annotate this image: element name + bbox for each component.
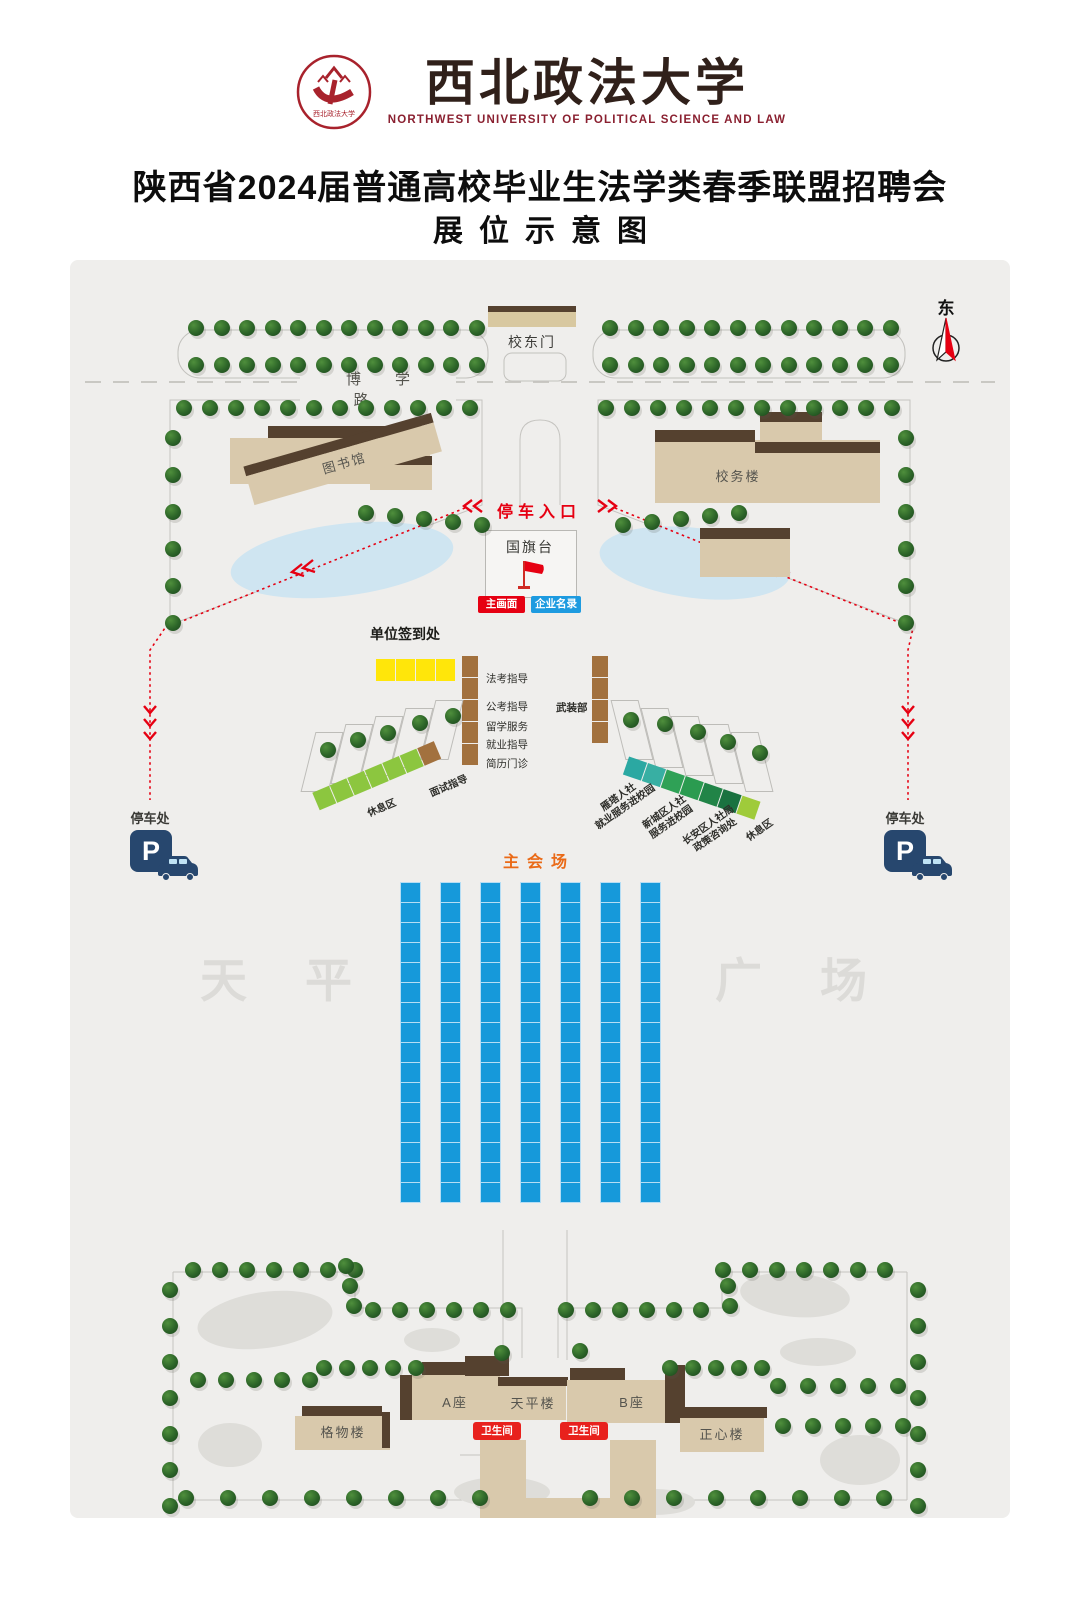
booth-cell: [401, 883, 420, 902]
tree-icon: [332, 400, 348, 416]
booth-cell: [481, 1043, 500, 1062]
gewu-side: [382, 1412, 390, 1448]
booth-cell: [641, 1083, 660, 1102]
tree-icon: [832, 357, 848, 373]
tree-icon: [800, 1378, 816, 1394]
guide-booth-cell: [592, 700, 608, 721]
fair-title: 陕西省2024届普通高校毕业生法学类春季联盟招聘会: [0, 160, 1080, 209]
tree-icon: [410, 400, 426, 416]
booth-cell: [441, 1003, 460, 1022]
booth-cell: [561, 1183, 580, 1202]
tree-icon: [857, 320, 873, 336]
tree-icon: [676, 400, 692, 416]
booth-grid-column: [400, 882, 421, 1203]
booth-cell: [601, 963, 620, 982]
booth-cell: [521, 1003, 540, 1022]
tree-icon: [708, 1490, 724, 1506]
admin-roof-left: [655, 430, 755, 442]
tree-icon: [262, 1490, 278, 1506]
tree-icon: [265, 357, 281, 373]
tree-icon: [754, 400, 770, 416]
tree-icon: [742, 1262, 758, 1278]
car-left-icon: [154, 854, 202, 882]
tree-icon: [302, 1372, 318, 1388]
booth-cell: [521, 1083, 540, 1102]
tree-icon: [266, 1262, 282, 1278]
tree-icon: [188, 357, 204, 373]
tianping-label: 天平楼: [498, 1393, 568, 1412]
booth-cell: [401, 963, 420, 982]
tree-icon: [188, 320, 204, 336]
tree-icon: [165, 578, 181, 594]
tree-icon: [446, 1302, 462, 1318]
booth-cell: [481, 1023, 500, 1042]
block-a-lower-wing: [480, 1440, 526, 1518]
tree-icon: [358, 505, 374, 521]
tree-icon: [419, 1302, 435, 1318]
tree-icon: [380, 725, 396, 741]
service-booth-label: 法考指导: [486, 671, 556, 686]
tree-icon: [165, 467, 181, 483]
booth-cell: [641, 1043, 660, 1062]
booth-cell: [641, 983, 660, 1002]
booth-cell: [401, 903, 420, 922]
tree-icon: [910, 1318, 926, 1334]
gewu-roof: [302, 1406, 382, 1416]
tree-icon: [883, 320, 899, 336]
zhengxin-label: 正心楼: [682, 1424, 762, 1443]
booth-cell: [401, 1063, 420, 1082]
tree-icon: [754, 1360, 770, 1376]
tree-icon: [720, 734, 736, 750]
tree-icon: [832, 400, 848, 416]
booth-cell: [601, 903, 620, 922]
tree-icon: [316, 1360, 332, 1376]
tree-icon: [162, 1462, 178, 1478]
tree-icon: [218, 1372, 234, 1388]
booth-cell: [521, 923, 540, 942]
booth-cell: [641, 1003, 660, 1022]
booth-cell: [601, 1043, 620, 1062]
booth-cell: [521, 1123, 540, 1142]
service-booth-label: 简历门诊: [486, 756, 556, 771]
compass-icon: [928, 316, 964, 370]
gate-building: [488, 312, 576, 327]
tree-icon: [412, 715, 428, 731]
tree-icon: [728, 400, 744, 416]
booth-cell: [561, 923, 580, 942]
tree-icon: [690, 724, 706, 740]
tree-icon: [165, 541, 181, 557]
tree-icon: [679, 357, 695, 373]
restroom-badge-left: 卫生间: [473, 1422, 521, 1440]
booth-cell: [441, 1183, 460, 1202]
guide-booth-column: [462, 656, 478, 765]
booth-cell: [401, 1163, 420, 1182]
booth-cell: [561, 1143, 580, 1162]
tree-icon: [883, 357, 899, 373]
booth-cell: [521, 943, 540, 962]
tree-icon: [693, 1302, 709, 1318]
booth-cell: [601, 1003, 620, 1022]
tree-icon: [165, 504, 181, 520]
tree-icon: [346, 1490, 362, 1506]
booth-cell: [601, 1183, 620, 1202]
booth-cell: [601, 943, 620, 962]
booth-cell: [481, 1143, 500, 1162]
booth-cell: [401, 1103, 420, 1122]
university-name: 西北政法大学: [388, 58, 787, 108]
tree-icon: [228, 400, 244, 416]
booth-cell: [521, 1023, 540, 1042]
tree-icon: [342, 1278, 358, 1294]
tree-icon: [850, 1262, 866, 1278]
tree-icon: [346, 1298, 362, 1314]
booth-cell: [401, 1023, 420, 1042]
tree-icon: [792, 1490, 808, 1506]
armed-forces-booth-column: [592, 656, 608, 743]
tree-icon: [704, 357, 720, 373]
booth-cell: [481, 923, 500, 942]
tree-icon: [162, 1498, 178, 1514]
booth-cell: [481, 1103, 500, 1122]
tree-icon: [392, 1302, 408, 1318]
tree-icon: [679, 320, 695, 336]
tree-icon: [178, 1490, 194, 1506]
booth-cell: [441, 1103, 460, 1122]
tree-icon: [214, 357, 230, 373]
tree-icon: [384, 400, 400, 416]
tree-icon: [857, 357, 873, 373]
tree-icon: [338, 1258, 354, 1274]
guide-booth-cell: [592, 656, 608, 677]
watermark-tianping: 天平: [200, 942, 410, 1011]
tree-icon: [598, 400, 614, 416]
booth-cell: [401, 943, 420, 962]
company-directory-badge: 企业名录: [531, 596, 581, 613]
tree-icon: [722, 1298, 738, 1314]
tree-icon: [582, 1490, 598, 1506]
tree-icon: [704, 320, 720, 336]
booth-cell: [441, 1023, 460, 1042]
tree-icon: [162, 1390, 178, 1406]
tree-icon: [806, 400, 822, 416]
tree-icon: [910, 1354, 926, 1370]
booth-cell: [561, 1003, 580, 1022]
booth-cell: [641, 1183, 660, 1202]
tree-icon: [500, 1302, 516, 1318]
tree-icon: [750, 1490, 766, 1506]
booth-cell: [561, 1043, 580, 1062]
booth-cell: [481, 1163, 500, 1182]
tree-icon: [715, 1262, 731, 1278]
tree-icon: [339, 1360, 355, 1376]
tree-icon: [469, 357, 485, 373]
tree-icon: [416, 511, 432, 527]
booth-cell: [641, 1063, 660, 1082]
guide-booth-cell: [462, 656, 478, 677]
tree-icon: [770, 1378, 786, 1394]
tree-icon: [341, 320, 357, 336]
tree-icon: [290, 320, 306, 336]
booth-cell: [601, 1143, 620, 1162]
booth-cell: [521, 1043, 540, 1062]
tree-icon: [445, 708, 461, 724]
tree-icon: [220, 1490, 236, 1506]
booth-cell: [481, 883, 500, 902]
checkin-desk-cell: [416, 659, 435, 681]
tree-icon: [430, 1490, 446, 1506]
booth-cell: [481, 943, 500, 962]
booth-cell: [441, 963, 460, 982]
tree-icon: [612, 1302, 628, 1318]
tree-icon: [781, 320, 797, 336]
tree-icon: [653, 357, 669, 373]
tree-icon: [781, 357, 797, 373]
booth-cell: [561, 903, 580, 922]
tree-icon: [898, 504, 914, 520]
guide-booth-cell: [462, 678, 478, 699]
booth-cell: [561, 963, 580, 982]
booth-cell: [441, 1123, 460, 1142]
gate-walk-rect: [504, 353, 566, 381]
tree-icon: [418, 357, 434, 373]
block-b-label: B座: [602, 1392, 662, 1411]
tree-icon: [445, 514, 461, 530]
booth-cell: [561, 1063, 580, 1082]
booth-cell: [521, 1103, 540, 1122]
booth-cell: [481, 1083, 500, 1102]
tree-icon: [190, 1372, 206, 1388]
booth-cell: [521, 1163, 540, 1182]
tree-icon: [898, 430, 914, 446]
car-right-icon: [908, 854, 956, 882]
tree-icon: [367, 320, 383, 336]
tree-icon: [628, 320, 644, 336]
restroom-badge-right: 卫生间: [560, 1422, 608, 1440]
booth-cell: [521, 983, 540, 1002]
tree-icon: [165, 615, 181, 631]
booth-cell: [481, 1063, 500, 1082]
tree-icon: [865, 1418, 881, 1434]
booth-cell: [641, 1143, 660, 1162]
booth-grid-column: [520, 882, 541, 1203]
tree-icon: [830, 1378, 846, 1394]
booth-cell: [401, 923, 420, 942]
venue-map: 东 校东门 博学路 图书馆 图书馆 校务楼 停车入口 国旗台 主画面 企业名录 …: [70, 260, 1010, 1518]
tree-icon: [418, 320, 434, 336]
tree-icon: [876, 1490, 892, 1506]
tree-icon: [890, 1378, 906, 1394]
tree-icon: [639, 1302, 655, 1318]
gate-arch-walkway: [520, 420, 560, 505]
tree-icon: [623, 712, 639, 728]
service-booth-label: 公考指导: [486, 699, 556, 714]
tree-icon: [392, 320, 408, 336]
tree-icon: [910, 1462, 926, 1478]
tree-icon: [472, 1490, 488, 1506]
tree-icon: [469, 320, 485, 336]
booth-cell: [401, 1003, 420, 1022]
tree-icon: [408, 1360, 424, 1376]
booth-cell: [441, 1143, 460, 1162]
booth-cell: [401, 1143, 420, 1162]
tree-icon: [392, 357, 408, 373]
tree-icon: [320, 742, 336, 758]
tree-icon: [162, 1426, 178, 1442]
booth-grid-column: [560, 882, 581, 1203]
booth-cell: [481, 903, 500, 922]
tree-icon: [673, 511, 689, 527]
tree-icon: [162, 1354, 178, 1370]
tree-icon: [666, 1490, 682, 1506]
booth-cell: [481, 1123, 500, 1142]
tree-icon: [280, 400, 296, 416]
booth-cell: [641, 1123, 660, 1142]
tree-icon: [474, 517, 490, 533]
booth-cell: [441, 1043, 460, 1062]
booth-cell: [601, 1123, 620, 1142]
booth-cell: [441, 983, 460, 1002]
booth-cell: [521, 883, 540, 902]
tree-icon: [176, 400, 192, 416]
guide-booth-cell: [592, 722, 608, 743]
svg-text:西北政法大学: 西北政法大学: [313, 109, 355, 118]
booth-cell: [481, 983, 500, 1002]
tree-icon: [624, 1490, 640, 1506]
tree-icon: [910, 1282, 926, 1298]
flag-icon: [515, 557, 545, 591]
tree-icon: [362, 1360, 378, 1376]
tree-icon: [265, 320, 281, 336]
booth-cell: [401, 1183, 420, 1202]
booth-cell: [561, 883, 580, 902]
tree-icon: [702, 400, 718, 416]
tree-icon: [316, 320, 332, 336]
booth-cell: [441, 883, 460, 902]
tree-icon: [274, 1372, 290, 1388]
booth-cell: [641, 963, 660, 982]
tree-icon: [358, 400, 374, 416]
main-venue-label: 主会场: [465, 848, 613, 872]
tree-icon: [755, 357, 771, 373]
tree-icon: [239, 1262, 255, 1278]
tree-icon: [293, 1262, 309, 1278]
booth-cell: [561, 983, 580, 1002]
tree-icon: [898, 467, 914, 483]
tree-icon: [246, 1372, 262, 1388]
tree-icon: [162, 1318, 178, 1334]
checkin-desk-cell: [376, 659, 395, 681]
tree-icon: [752, 745, 768, 761]
guide-booth-cell: [462, 744, 478, 765]
tianping-roof: [498, 1377, 568, 1386]
booth-grid-column: [600, 882, 621, 1203]
parking-entrance-label: 停车入口: [470, 498, 608, 522]
booth-cell: [601, 1083, 620, 1102]
tree-icon: [304, 1490, 320, 1506]
university-name-en: NORTHWEST UNIVERSITY OF POLITICAL SCIENC…: [388, 114, 787, 126]
tree-icon: [165, 430, 181, 446]
block-a-side: [400, 1375, 412, 1420]
admin-roof-right: [755, 442, 880, 453]
checkin-desk: [376, 659, 455, 681]
main-screen-badge: 主画面: [478, 596, 525, 613]
tree-icon: [239, 357, 255, 373]
flag-platform-label: 国旗台: [495, 537, 565, 557]
tree-icon: [657, 716, 673, 732]
booth-cell: [561, 1163, 580, 1182]
guide-booth-cell: [592, 678, 608, 699]
tree-icon: [624, 400, 640, 416]
tree-icon: [858, 400, 874, 416]
tree-icon: [316, 357, 332, 373]
tree-icon: [806, 357, 822, 373]
booth-cell: [481, 1003, 500, 1022]
tree-icon: [615, 517, 631, 533]
booth-cell: [521, 963, 540, 982]
tree-icon: [214, 320, 230, 336]
tree-icon: [834, 1490, 850, 1506]
tree-icon: [290, 357, 306, 373]
tree-icon: [602, 320, 618, 336]
booth-cell: [441, 1163, 460, 1182]
tree-icon: [910, 1426, 926, 1442]
booth-cell: [401, 983, 420, 1002]
service-booth-label: 留学服务: [486, 719, 556, 734]
tree-icon: [895, 1418, 911, 1434]
tree-icon: [341, 357, 357, 373]
tree-icon: [653, 320, 669, 336]
tree-icon: [254, 400, 270, 416]
booth-cell: [601, 1063, 620, 1082]
tree-icon: [898, 615, 914, 631]
booth-cell: [641, 1103, 660, 1122]
tree-icon: [387, 508, 403, 524]
booth-cell: [561, 1083, 580, 1102]
tree-icon: [350, 732, 366, 748]
booth-cell: [521, 903, 540, 922]
tree-icon: [662, 1360, 678, 1376]
tree-icon: [572, 1343, 588, 1359]
checkin-desk-cell: [396, 659, 415, 681]
booth-cell: [561, 1103, 580, 1122]
tree-icon: [666, 1302, 682, 1318]
tree-icon: [860, 1378, 876, 1394]
tree-icon: [306, 400, 322, 416]
booth-cell: [441, 943, 460, 962]
tree-icon: [202, 400, 218, 416]
tree-icon: [436, 400, 452, 416]
tree-icon: [585, 1302, 601, 1318]
tree-icon: [685, 1360, 701, 1376]
tree-icon: [805, 1418, 821, 1434]
gate-label: 校东门: [478, 332, 586, 352]
booth-cell: [561, 1023, 580, 1042]
tree-icon: [320, 1262, 336, 1278]
gewu-label: 格物楼: [303, 1422, 383, 1441]
booth-cell: [521, 1063, 540, 1082]
tree-icon: [796, 1262, 812, 1278]
tree-icon: [780, 400, 796, 416]
parking-right-label: 停车处: [867, 808, 943, 827]
tree-icon: [708, 1360, 724, 1376]
tree-icon: [443, 320, 459, 336]
checkin-desk-cell: [436, 659, 455, 681]
booth-cell: [441, 1083, 460, 1102]
tree-icon: [162, 1282, 178, 1298]
admin-wing: [700, 539, 790, 577]
